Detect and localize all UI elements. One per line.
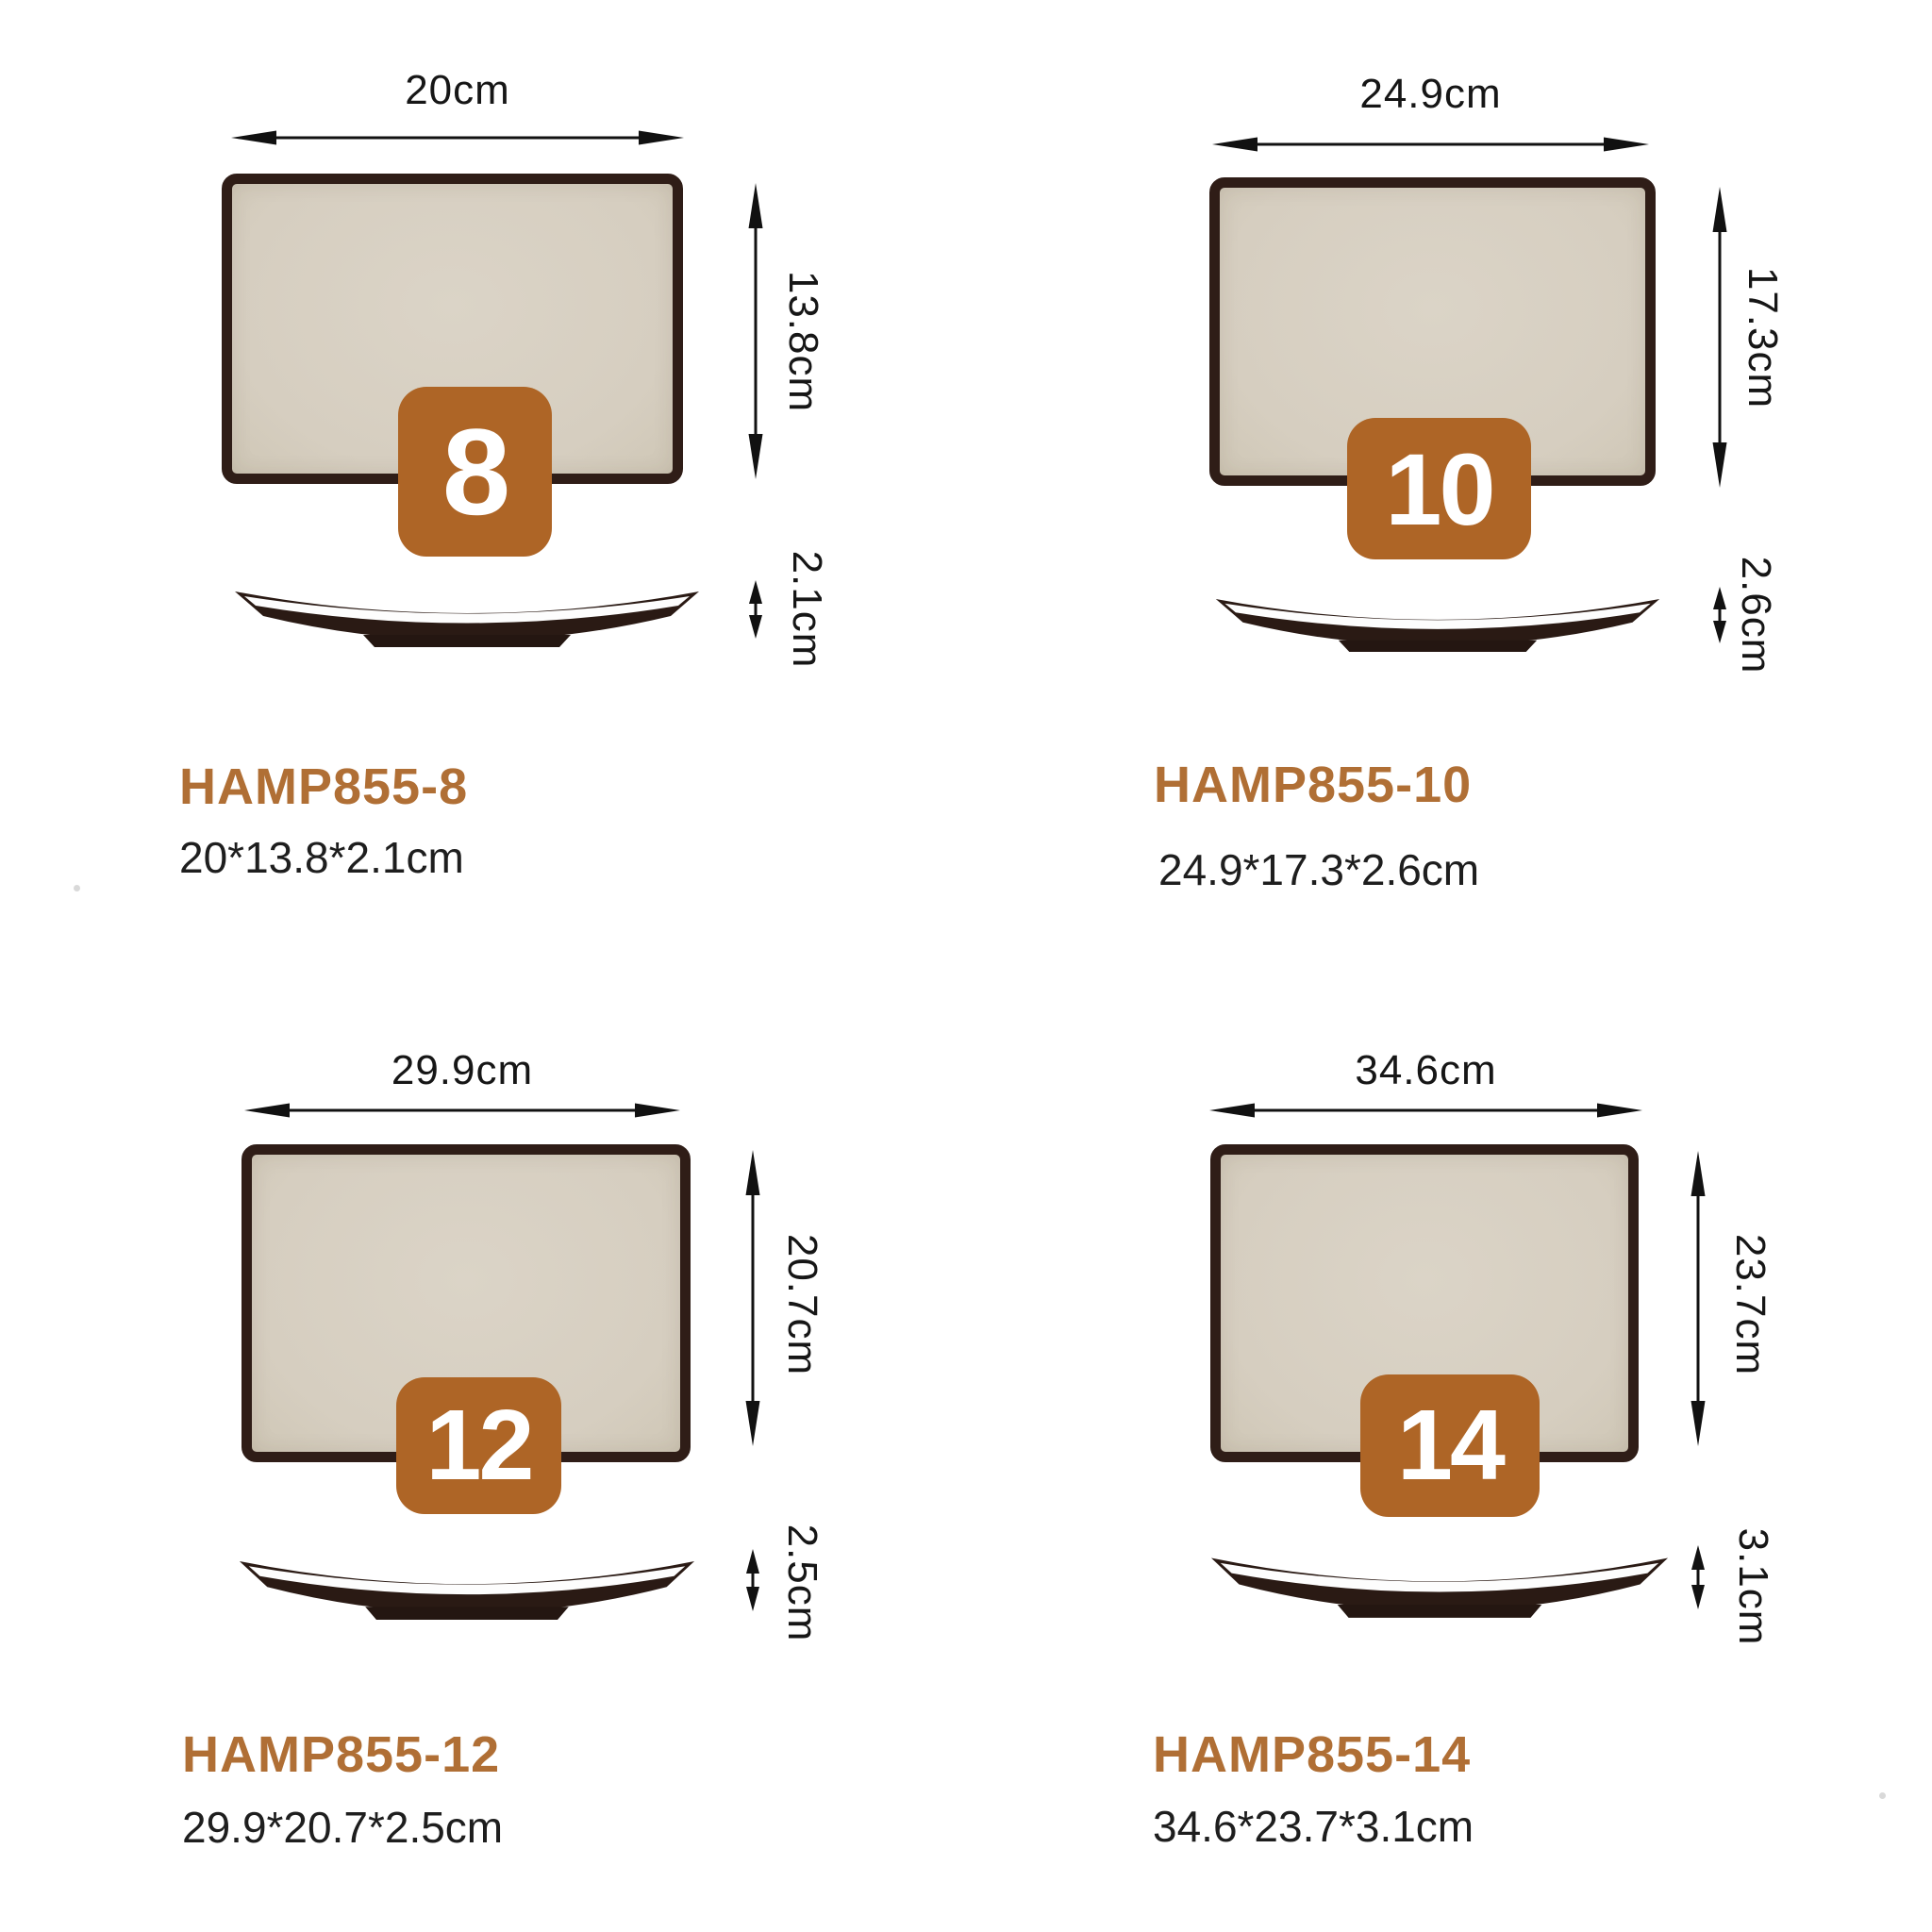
size-badge: 12: [396, 1377, 561, 1514]
height-dimension-label: 23.7cm: [1726, 1234, 1774, 1375]
width-dimension-label: 29.9cm: [242, 1046, 682, 1095]
thickness-dimension-label: 2.1cm: [783, 551, 830, 669]
thickness-dimension-arrow: [744, 578, 767, 641]
product-dimensions-text: 20*13.8*2.1cm: [179, 834, 464, 881]
thickness-dimension-label: 2.6cm: [1732, 557, 1779, 675]
width-dimension-arrow: [1210, 133, 1651, 156]
height-dimension-arrow: [741, 1148, 764, 1448]
height-dimension-label: 20.7cm: [778, 1234, 825, 1375]
size-badge-number: 8: [442, 401, 508, 542]
product-dimensions-text: 24.9*17.3*2.6cm: [1158, 846, 1479, 893]
size-badge-number: 12: [426, 1389, 532, 1503]
height-dimension-arrow: [1687, 1149, 1709, 1448]
product-code: HAMP855-14: [1153, 1728, 1471, 1781]
product-code: HAMP855-12: [182, 1728, 500, 1781]
plate-side-view: [1212, 581, 1663, 653]
plate-side-view: [231, 573, 703, 648]
plate-side-view: [1207, 1538, 1672, 1619]
thickness-dimension-label: 2.5cm: [778, 1524, 825, 1642]
height-dimension-label: 13.8cm: [779, 271, 826, 412]
thickness-dimension-arrow: [1708, 585, 1731, 645]
product-code: HAMP855-8: [179, 760, 468, 813]
size-badge: 14: [1360, 1374, 1540, 1517]
size-badge-number: 14: [1397, 1389, 1503, 1503]
plate-side-view: [236, 1541, 698, 1621]
product-dimensions-text: 34.6*23.7*3.1cm: [1153, 1803, 1474, 1850]
width-dimension-arrow: [242, 1099, 682, 1122]
width-dimension-arrow: [229, 126, 686, 149]
size-badge-number: 10: [1385, 430, 1492, 548]
thickness-dimension-label: 3.1cm: [1729, 1528, 1776, 1646]
height-dimension-arrow: [1708, 185, 1731, 490]
width-dimension-label: 20cm: [229, 66, 686, 115]
product-size-chart: 20cm 8 13.8cm 2.1cm HAMP855-8 20*13.8*2.…: [0, 0, 1932, 1932]
height-dimension-label: 17.3cm: [1739, 267, 1786, 408]
size-badge: 8: [398, 387, 552, 557]
width-dimension-label: 34.6cm: [1207, 1046, 1644, 1095]
thickness-dimension-arrow: [741, 1547, 764, 1613]
width-dimension-arrow: [1207, 1099, 1644, 1122]
image-speck: [1879, 1792, 1886, 1799]
product-code: HAMP855-10: [1154, 758, 1472, 811]
image-speck: [74, 885, 80, 891]
product-dimensions-text: 29.9*20.7*2.5cm: [182, 1804, 503, 1851]
width-dimension-label: 24.9cm: [1210, 70, 1651, 119]
height-dimension-arrow: [744, 181, 767, 481]
thickness-dimension-arrow: [1687, 1543, 1709, 1611]
size-badge: 10: [1347, 418, 1531, 559]
